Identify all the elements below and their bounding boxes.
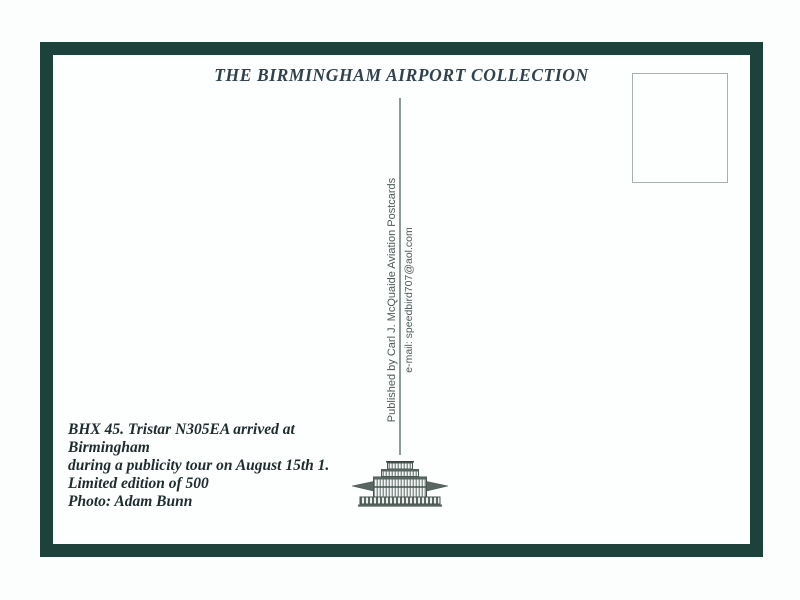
email-vertical-text: e-mail: speedbird707@aol.com [403, 227, 415, 372]
caption-line: Birmingham [68, 439, 329, 457]
caption-line: BHX 45. Tristar N305EA arrived at [68, 421, 329, 439]
publisher-vertical-text: Published by Carl J. McQuaide Aviation P… [386, 178, 398, 422]
divider-line [399, 98, 401, 455]
caption-line: Limited edition of 500 [68, 475, 329, 493]
caption-line: Photo: Adam Bunn [68, 493, 329, 511]
caption-block: BHX 45. Tristar N305EA arrived at Birmin… [68, 421, 329, 511]
postcard: THE BIRMINGHAM AIRPORT COLLECTION Publis… [53, 55, 750, 544]
caption-line: during a publicity tour on August 15th 1… [68, 457, 329, 475]
airport-terminal-icon [352, 461, 448, 509]
stamp-box [632, 73, 728, 183]
postcard-frame: THE BIRMINGHAM AIRPORT COLLECTION Publis… [40, 42, 763, 557]
